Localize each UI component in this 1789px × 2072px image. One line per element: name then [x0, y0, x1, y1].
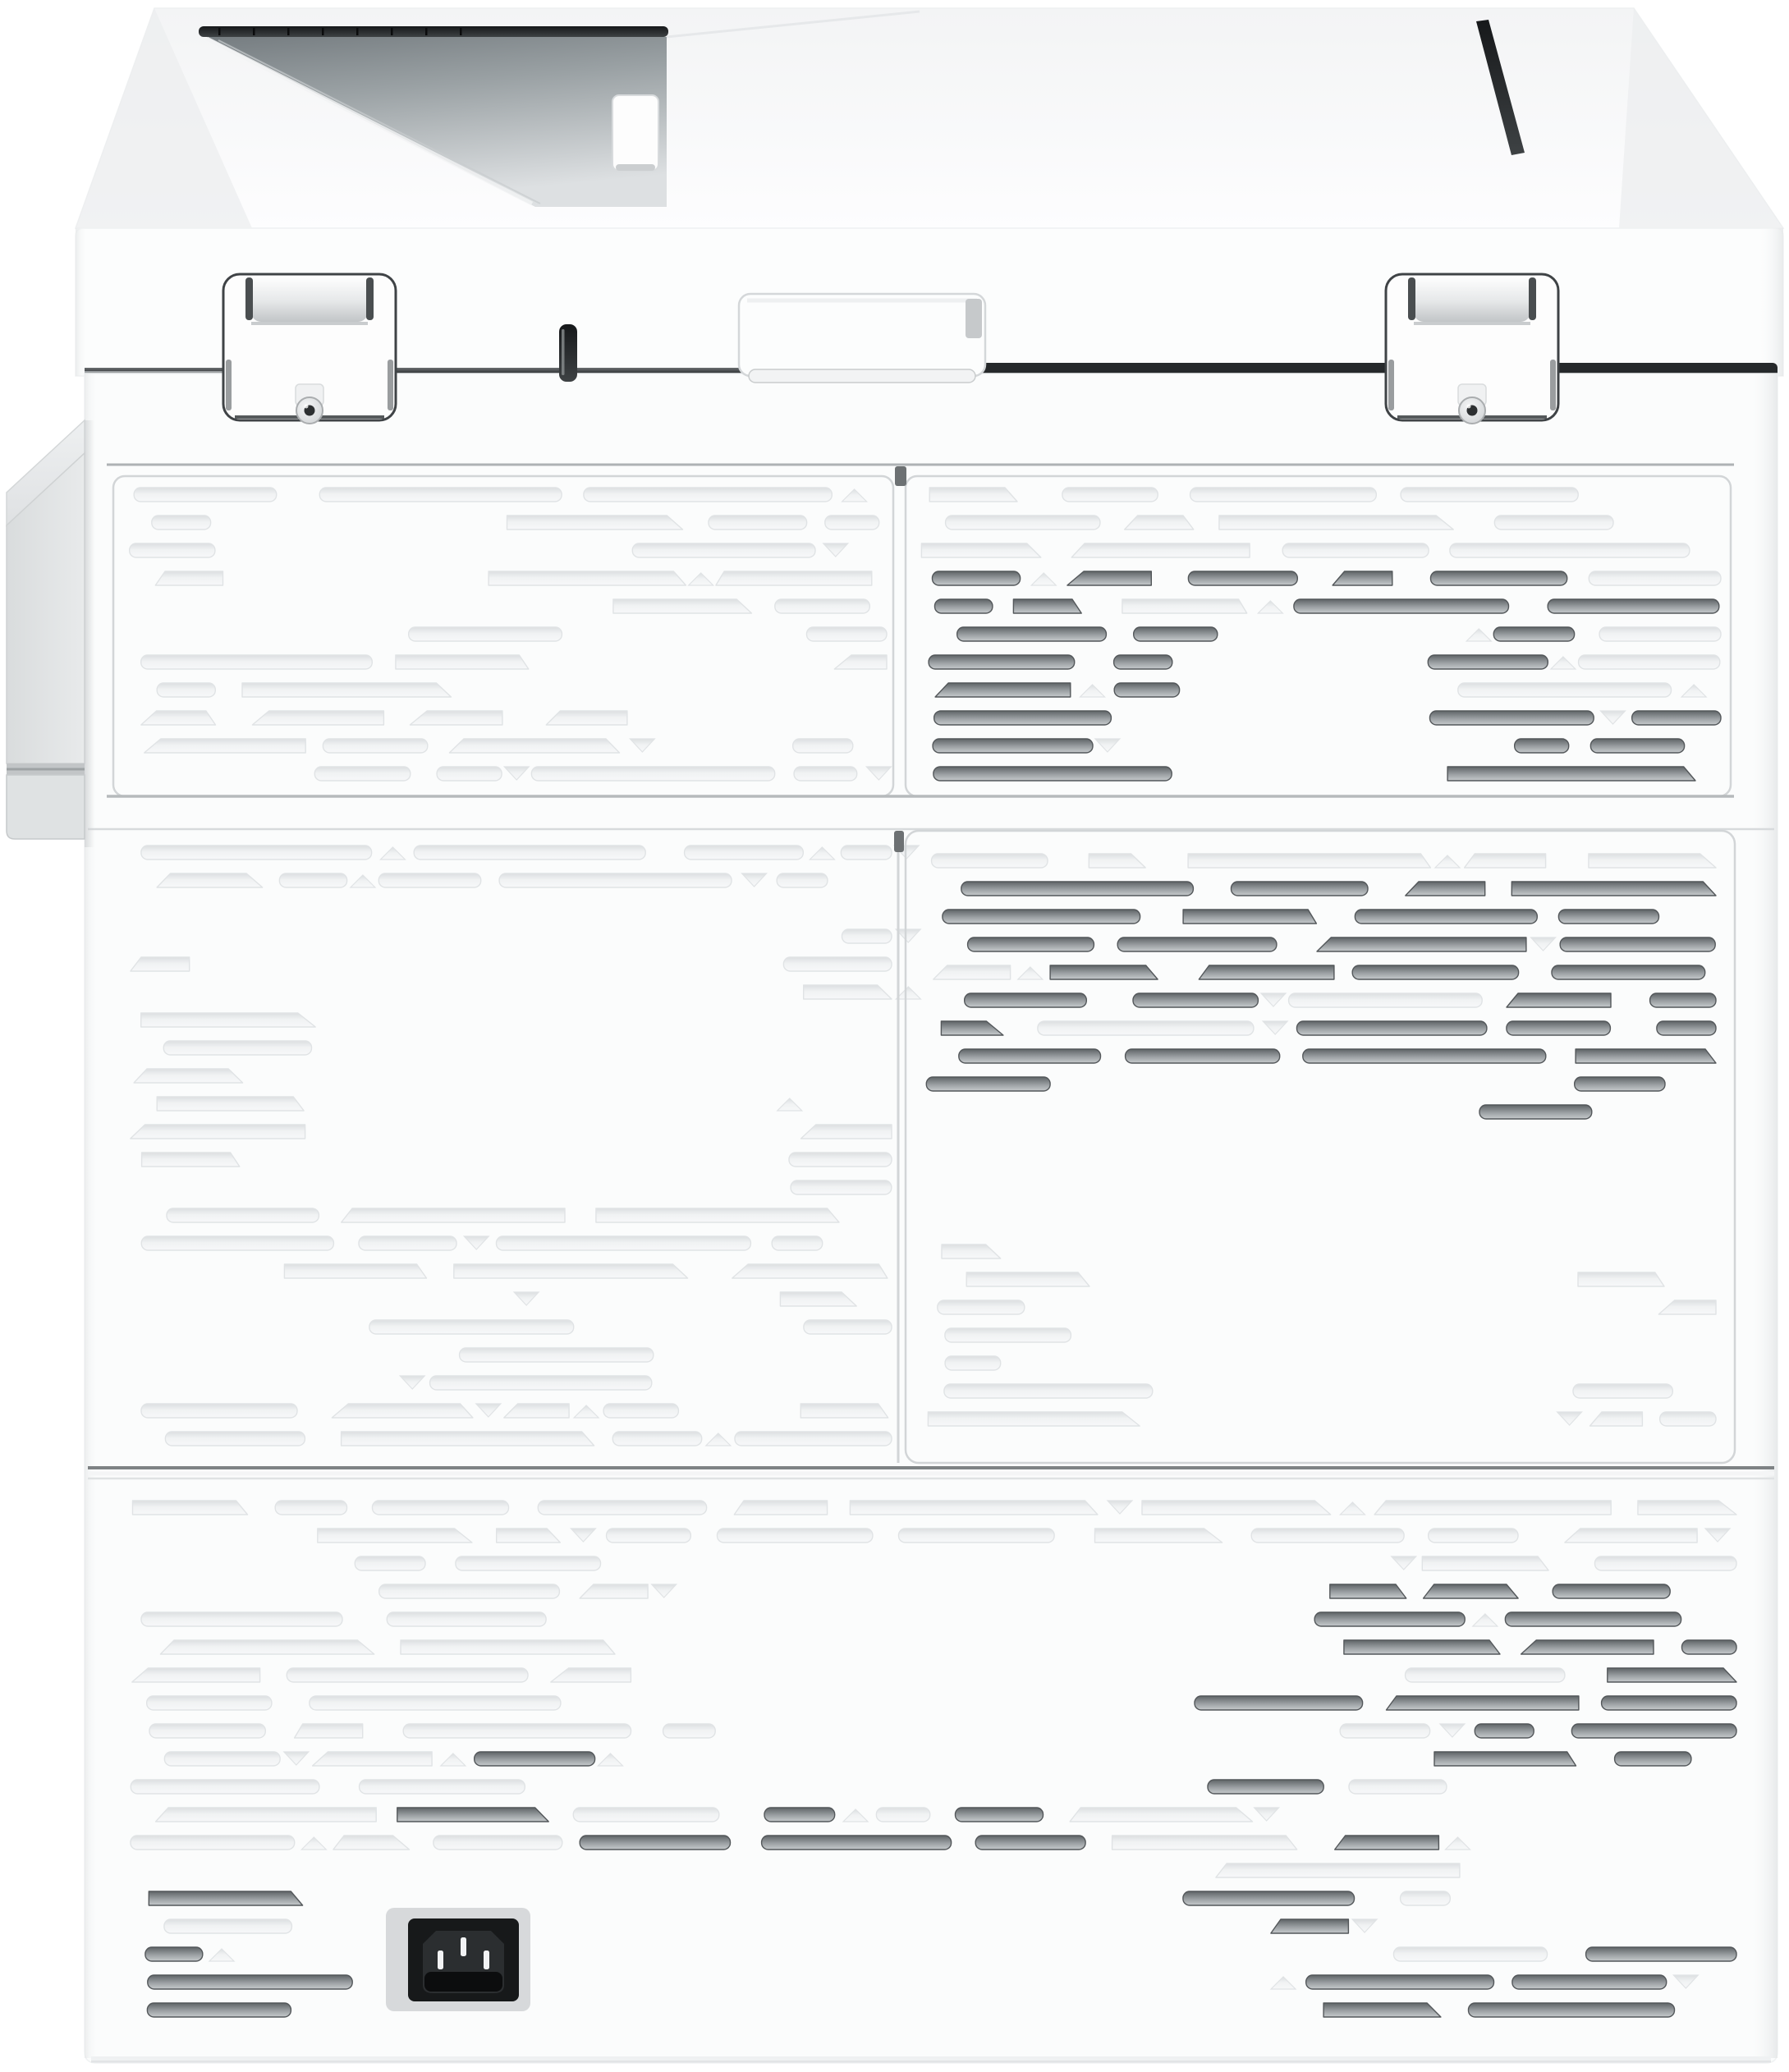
- paper-guide-tick: [287, 28, 290, 35]
- paper-stopper: [612, 95, 658, 171]
- hinge-barrel: [251, 276, 368, 322]
- printer-rear-photo: [0, 0, 1789, 2072]
- center-latch: [739, 294, 985, 383]
- paper-guide-tick: [391, 28, 393, 35]
- paper-guide-tick: [322, 28, 324, 35]
- lock-slot: [559, 324, 577, 382]
- paper-guide-tick: [218, 28, 221, 35]
- power-pin: [461, 1937, 466, 1956]
- power-pin: [484, 1951, 489, 1969]
- hinge-barrel: [1414, 276, 1530, 322]
- paper-guide-tick: [356, 28, 359, 35]
- printer-scene: [0, 0, 1789, 2072]
- right-screw: [1458, 384, 1486, 424]
- adf-output-slot: [199, 26, 668, 37]
- paper-guide-tick: [253, 28, 255, 35]
- power-pin: [438, 1951, 443, 1969]
- left-side-cover: [7, 420, 94, 847]
- paper-guide-tick: [460, 28, 462, 35]
- left-screw: [296, 384, 323, 424]
- power-inlet: [386, 1908, 530, 2011]
- paper-guide-tick: [425, 28, 428, 35]
